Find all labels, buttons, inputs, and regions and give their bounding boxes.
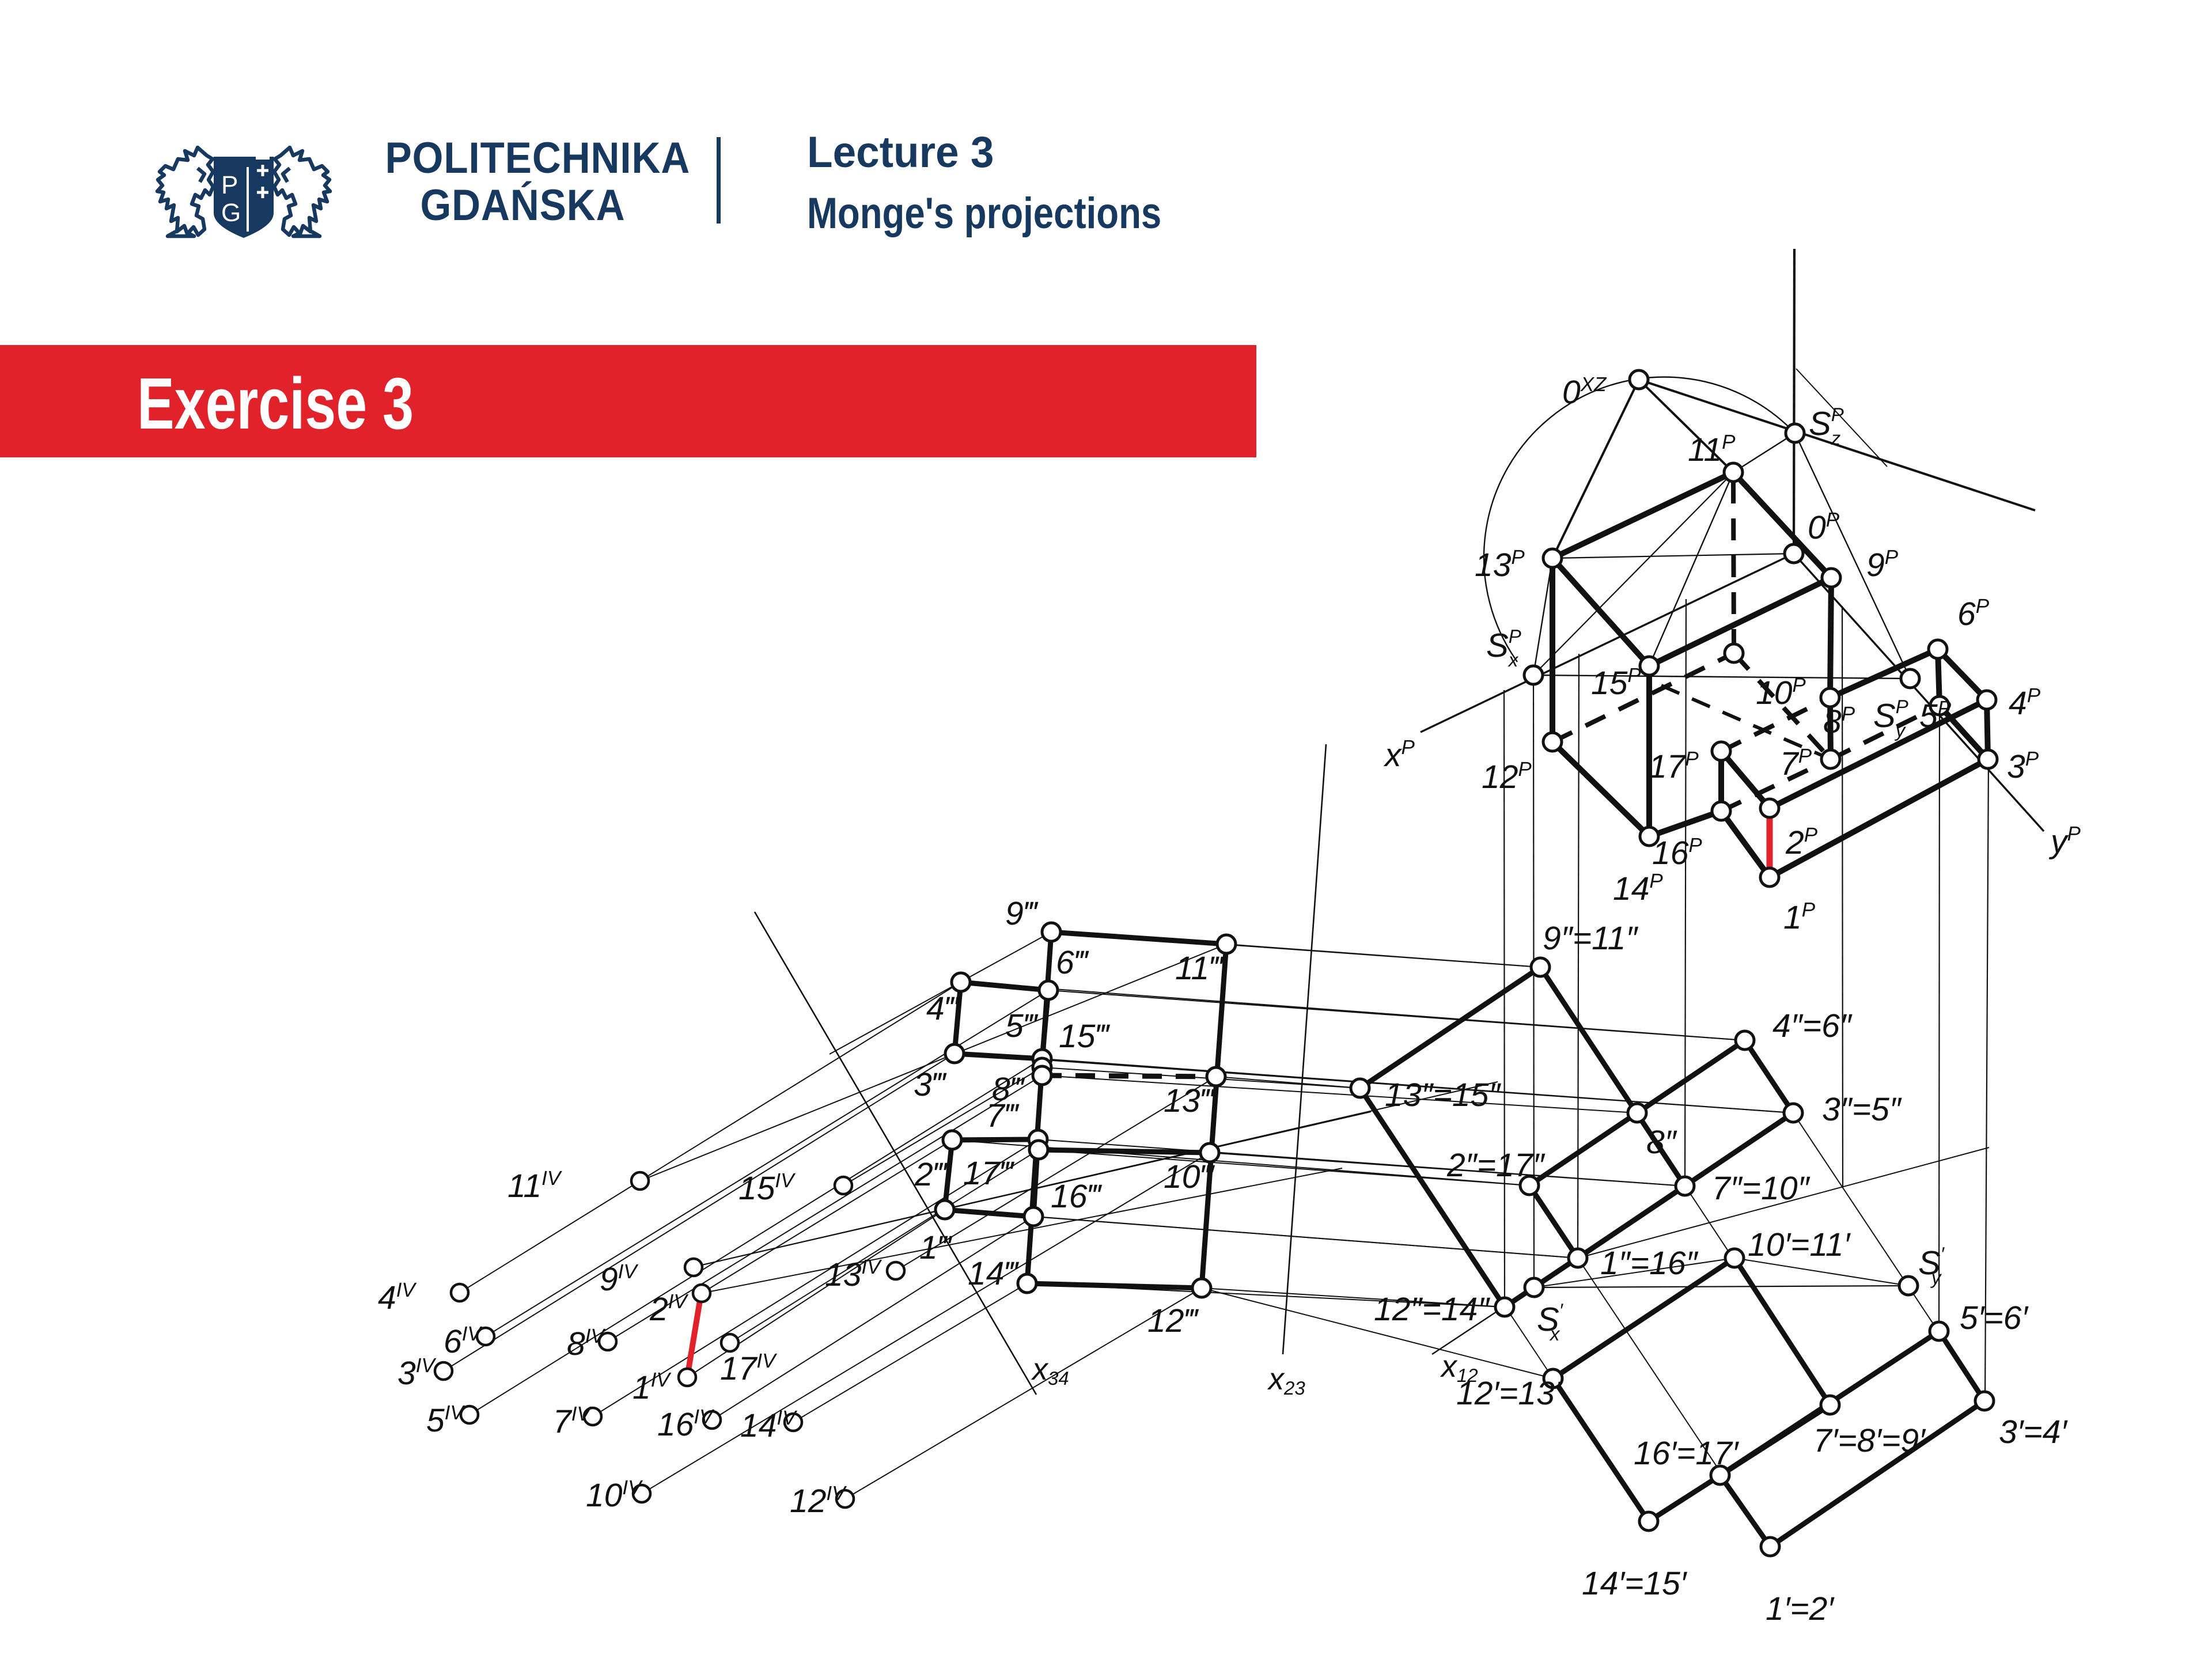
svg-text:9IV: 9IV [600,1260,639,1298]
svg-text:6‴: 6‴ [1056,944,1089,981]
svg-text:SPy: SPy [1873,696,1908,741]
svg-text:9″=11″: 9″=11″ [1543,920,1638,957]
svg-text:10′=11′: 10′=11′ [1748,1226,1851,1263]
svg-text:1IV: 1IV [632,1369,672,1406]
svg-text:9‴: 9‴ [1005,895,1039,932]
svg-text:4P: 4P [2009,684,2041,722]
svg-text:11IV: 11IV [507,1167,563,1205]
svg-text:17‴: 17‴ [963,1155,1014,1192]
svg-text:10IV: 10IV [586,1476,643,1514]
svg-text:SPz: SPz [1809,404,1844,449]
svg-text:14‴: 14‴ [968,1255,1019,1292]
svg-text:12‴: 12‴ [1147,1302,1199,1339]
svg-text:10‴: 10‴ [1164,1158,1215,1195]
svg-text:5‴: 5‴ [1005,1007,1039,1044]
svg-text:3P: 3P [2007,748,2039,785]
svg-text:16′=17′: 16′=17′ [1634,1435,1740,1472]
svg-text:5IV: 5IV [426,1402,465,1439]
svg-text:xP: xP [1383,736,1415,774]
svg-text:5P: 5P [1919,697,1952,734]
svg-text:0XZ: 0XZ [1562,373,1607,411]
svg-text:4‴: 4‴ [926,990,960,1027]
svg-text:4IV: 4IV [378,1279,417,1316]
svg-text:1′=2′: 1′=2′ [1766,1590,1835,1627]
svg-text:13‴: 13‴ [1164,1082,1215,1119]
svg-text:2‴: 2‴ [914,1156,948,1193]
svg-text:6IV: 6IV [444,1323,483,1360]
svg-text:13P: 13P [1475,546,1525,584]
svg-text:13IV: 13IV [825,1256,882,1293]
svg-text:4″=6″: 4″=6″ [1772,1007,1853,1044]
svg-text:5′=6′: 5′=6′ [1960,1300,2029,1336]
svg-text:yP: yP [2048,823,2081,860]
svg-text:3′=4′: 3′=4′ [1999,1414,2068,1450]
svg-text:7′=8′=9′: 7′=8′=9′ [1813,1422,1926,1459]
svg-text:15‴: 15‴ [1059,1018,1110,1055]
svg-text:S′y: S′y [1918,1243,1945,1288]
svg-text:12IV: 12IV [790,1482,847,1520]
svg-text:13″=15″: 13″=15″ [1385,1077,1501,1113]
svg-text:8″: 8″ [1646,1124,1677,1161]
svg-text:0P: 0P [1808,509,1840,546]
svg-text:14IV: 14IV [740,1407,798,1444]
svg-text:8P: 8P [1823,703,1855,740]
svg-text:SPx: SPx [1486,626,1521,671]
svg-text:12P: 12P [1482,758,1532,796]
svg-text:1″=16″: 1″=16″ [1600,1245,1699,1282]
svg-text:11P: 11P [1688,431,1736,468]
svg-text:S′x: S′x [1537,1300,1564,1344]
svg-text:3‴: 3‴ [914,1066,947,1103]
svg-text:1‴: 1‴ [919,1229,953,1266]
svg-text:16P: 16P [1652,834,1702,872]
svg-text:11‴: 11‴ [1175,950,1224,987]
svg-text:3″=5″: 3″=5″ [1822,1091,1902,1128]
svg-text:3IV: 3IV [397,1354,437,1392]
svg-text:14′=15′: 14′=15′ [1582,1565,1688,1602]
svg-text:6P: 6P [1957,595,1990,632]
svg-text:15IV: 15IV [738,1169,796,1207]
svg-text:7″=10″: 7″=10″ [1712,1170,1810,1207]
svg-text:17IV: 17IV [720,1350,778,1387]
svg-text:1P: 1P [1783,899,1816,936]
svg-text:x23: x23 [1267,1362,1305,1399]
svg-text:7‴: 7‴ [986,1097,1020,1134]
svg-text:15P: 15P [1591,664,1641,702]
svg-text:14P: 14P [1613,870,1663,907]
svg-text:16‴: 16‴ [1051,1178,1102,1215]
svg-text:16IV: 16IV [657,1406,715,1443]
svg-text:2IV: 2IV [649,1290,689,1328]
svg-text:7IV: 7IV [553,1403,592,1440]
svg-text:12″=14″: 12″=14″ [1374,1291,1490,1328]
svg-text:x34: x34 [1031,1352,1069,1389]
svg-text:9P: 9P [1866,546,1899,584]
svg-text:17P: 17P [1649,748,1699,785]
svg-text:2″=17″: 2″=17″ [1446,1147,1546,1184]
svg-text:8IV: 8IV [567,1325,606,1362]
svg-text:10P: 10P [1756,674,1806,711]
svg-text:7P: 7P [1780,745,1812,782]
